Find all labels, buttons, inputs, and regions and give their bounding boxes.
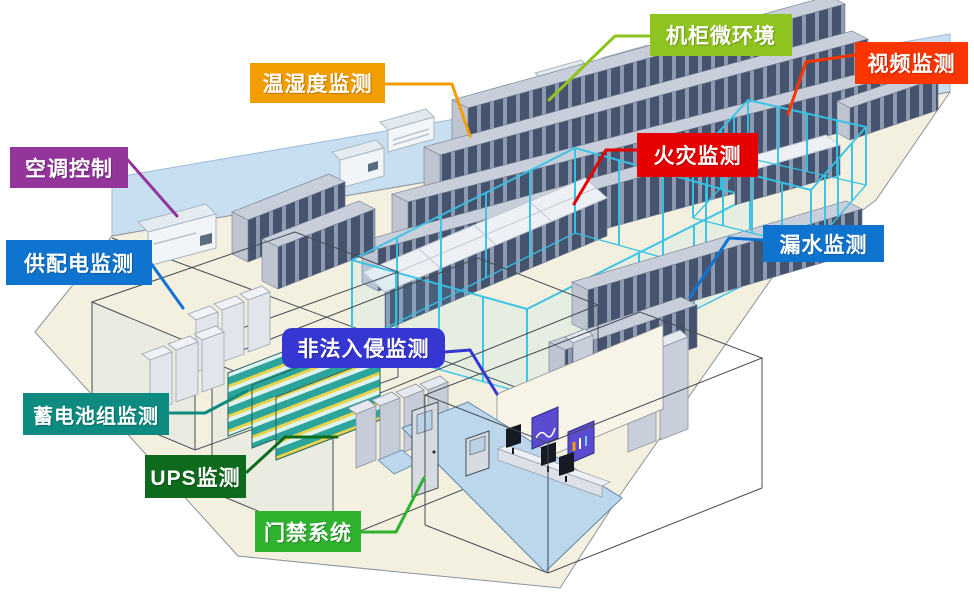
label-water-leak: 漏水监测 [763, 225, 884, 262]
label-ac-control: 空调控制 [10, 147, 128, 188]
label-access-control: 门禁系统 [255, 511, 361, 552]
label-temperature-humidity: 温湿度监测 [250, 63, 385, 103]
datacenter-monitoring-diagram: 机柜微环境 视频监测 温湿度监测 火灾监测 空调控制 供配电监测 漏水监测 非法… [0, 0, 974, 600]
label-fire-monitoring: 火灾监测 [637, 133, 758, 177]
label-power-distribution: 供配电监测 [6, 240, 152, 285]
label-cabinet-microenvironment: 机柜微环境 [650, 14, 792, 56]
label-intrusion-monitoring: 非法入侵监测 [282, 328, 445, 368]
label-battery-monitoring: 蓄电池组监测 [23, 393, 169, 435]
label-ups-monitoring: UPS监测 [145, 455, 246, 498]
isometric-machine-room-illustration [0, 0, 974, 600]
label-video-monitoring: 视频监测 [855, 42, 968, 84]
